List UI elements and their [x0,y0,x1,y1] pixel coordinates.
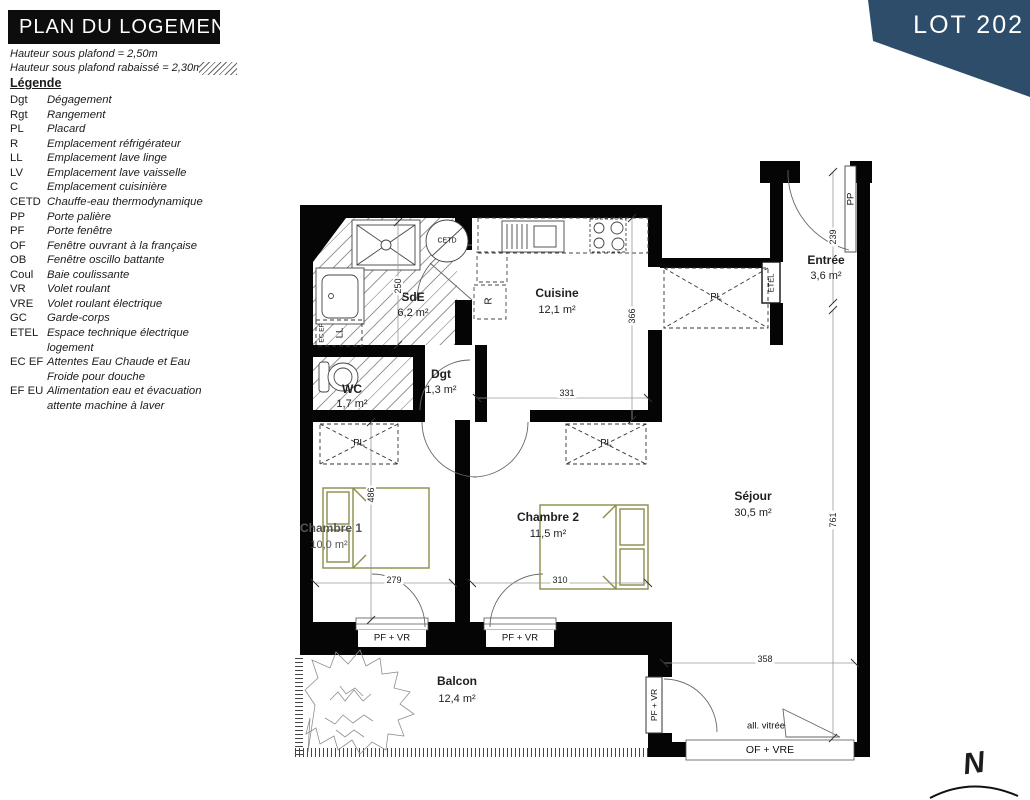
ceiling-note-1: Hauteur sous plafond = 2,50m [10,48,158,60]
legend-item: GCGarde-corps [10,311,248,326]
north-arrow-arc [930,786,1018,798]
legend-abbr: LV [10,166,47,181]
dim-cuisine-height: 366 [627,306,637,325]
room-area-dgt: 1,3 m² [425,384,456,396]
legend-abbr: CETD [10,195,47,210]
dim-chambre1-height: 486 [366,485,376,504]
room-area-chambre1: 10,0 m² [310,539,347,551]
legend-desc: Emplacement lave linge [47,151,167,166]
dim-chambre1-width: 279 [384,575,403,585]
room-area-entree: 3,6 m² [810,270,841,282]
dim-sejour-width: 358 [755,654,774,664]
legend-abbr: OB [10,253,47,268]
legend-item: CEmplacement cuisinière [10,180,248,195]
legend-abbr: Rgt [10,108,47,123]
ceiling-note-2: Hauteur sous plafond rabaissé = 2,30m [10,62,202,74]
floor-plan-page: PLAN DU LOGEMENT Hauteur sous plafond = … [0,0,1030,800]
label-pf-vr-chambre1: PF + VR [374,633,410,644]
legend-desc: Fenêtre ouvrant à la française [47,239,197,254]
room-name-entree: Entrée [807,253,844,267]
label-etel: ETEL [767,274,776,293]
sink-icon [502,221,564,252]
room-name-sejour: Séjour [734,489,771,503]
room-area-sde: 6,2 m² [397,307,428,319]
room-area-sejour: 30,5 m² [734,507,771,519]
legend-desc: Emplacement cuisinière [47,180,167,195]
label-placard-chambre2: PL [600,438,612,449]
legend-heading: Légende [10,76,61,90]
legend-desc: Garde-corps [47,311,110,326]
legend-item: PLPlacard [10,122,248,137]
legend-item: EC EFAttentes Eau Chaude et Eau Froide p… [10,355,248,384]
legend-desc: Placard [47,122,85,137]
legend-abbr: R [10,137,47,152]
dim-cuisine-width: 331 [557,388,576,398]
legend-abbr: GC [10,311,47,326]
legend-item: REmplacement réfrigérateur [10,137,248,152]
room-name-balcon: Balcon [437,674,477,688]
legend-item: PFPorte fenêtre [10,224,248,239]
legend-desc: Dégagement [47,93,112,108]
legend-desc: Volet roulant [47,282,110,297]
label-of-vre: OF + VRE [746,744,794,756]
legend-desc: Porte palière [47,210,111,225]
room-area-chambre2: 11,5 m² [530,528,566,540]
legend-abbr: OF [10,239,47,254]
legend-item: OBFenêtre oscillo battante [10,253,248,268]
legend-abbr: PL [10,122,47,137]
legend-item: CETDChauffe-eau thermodynamique [10,195,248,210]
page-title: PLAN DU LOGEMENT [8,10,220,44]
legend-desc: Baie coulissante [47,268,129,283]
door-arc-balcon [664,679,717,732]
legend-desc: Emplacement lave vaisselle [47,166,186,181]
dim-entree-height: 239 [828,227,838,246]
label-lave-linge: LL [335,328,346,339]
legend: DgtDégagement RgtRangement PLPlacard REm… [10,93,248,413]
room-name-chambre1: Chambre 1 [300,521,362,535]
legend-desc: Espace technique électrique logement [47,326,219,355]
label-all-vitree: all. vitrée [747,721,785,732]
legend-desc: Alimentation eau et évacuation attente m… [47,384,219,413]
label-pf-vr-chambre2: PF + VR [502,633,538,644]
legend-item: DgtDégagement [10,93,248,108]
legend-desc: Chauffe-eau thermodynamique [47,195,203,210]
lot-number: LOT 202 [913,11,1024,40]
legend-desc: Emplacement réfrigérateur [47,137,181,152]
window-swing-of [783,709,840,737]
legend-item: LVEmplacement lave vaisselle [10,166,248,181]
room-name-sde: SdE [401,290,424,304]
legend-item: LLEmplacement lave linge [10,151,248,166]
legend-abbr: EF EU [10,384,47,399]
legend-abbr: LL [10,151,47,166]
dim-sde-height: 250 [393,276,403,295]
room-area-cuisine: 12,1 m² [538,304,575,316]
legend-item: RgtRangement [10,108,248,123]
legend-item: PPPorte palière [10,210,248,225]
legend-desc: Volet roulant électrique [47,297,162,312]
room-name-wc: WC [342,382,362,396]
legend-abbr: C [10,180,47,195]
legend-item: VRVolet roulant [10,282,248,297]
legend-desc: Attentes Eau Chaude et Eau Froide pour d… [47,355,219,384]
lowered-ceiling-hatch-swatch [199,62,237,75]
legend-desc: Rangement [47,108,105,123]
label-cetd: CETD [437,238,456,245]
label-placard-entree: PL [710,292,722,303]
dim-sejour-height: 761 [828,510,838,529]
room-name-cuisine: Cuisine [535,286,578,300]
legend-item: OFFenêtre ouvrant à la française [10,239,248,254]
legend-abbr: PF [10,224,47,239]
room-area-wc: 1,7 m² [336,398,367,410]
legend-abbr: VR [10,282,47,297]
legend-item: VREVolet roulant électrique [10,297,248,312]
legend-item: ETELEspace technique électrique logement [10,326,248,355]
label-pf-vr-sejour: PF + VR [649,689,659,721]
room-name-dgt: Dgt [431,367,451,381]
legend-abbr: ETEL [10,326,47,341]
washbasin-icon [316,268,364,324]
shower-icon [352,220,420,270]
room-name-chambre2: Chambre 2 [517,510,579,524]
legend-abbr: EC EF [10,355,47,370]
door-arc-chambre2 [473,422,528,477]
legend-desc: Fenêtre oscillo battante [47,253,164,268]
stove-icon [590,219,626,252]
legend-abbr: Coul [10,268,47,283]
legend-abbr: Dgt [10,93,47,108]
label-ec-ef: EC EF [319,323,326,342]
tree-sketch [305,650,414,754]
legend-desc: Porte fenêtre [47,224,112,239]
label-placard-chambre1: PL [353,438,365,449]
dim-chambre2-width: 310 [550,575,569,585]
legend-item: EF EUAlimentation eau et évacuation atte… [10,384,248,413]
label-porte-paliere: PP [846,193,857,206]
label-fridge-r: R [484,297,495,304]
north-arrow-label: N [961,746,987,783]
legend-abbr: VRE [10,297,47,312]
room-area-balcon: 12,4 m² [438,693,475,705]
legend-item: CoulBaie coulissante [10,268,248,283]
legend-abbr: PP [10,210,47,225]
